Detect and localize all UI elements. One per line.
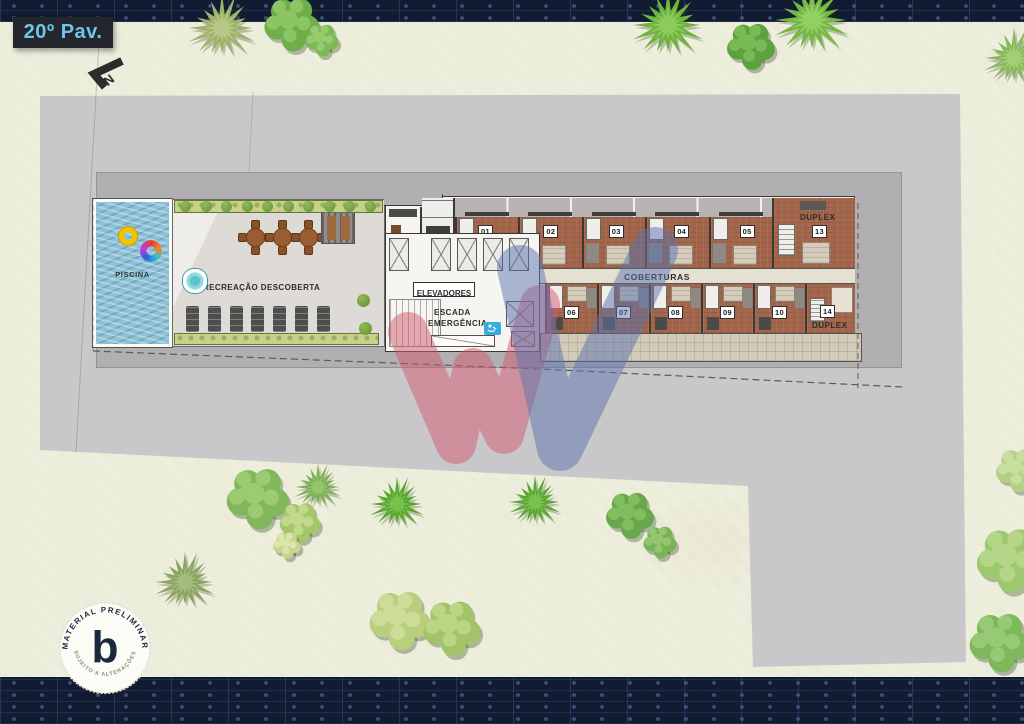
elevators-label: ELEVADORES — [417, 289, 472, 298]
elevators-labelbox: ELEVADORES — [413, 282, 475, 297]
unit-bath — [757, 285, 771, 309]
unit-number: 09 — [720, 306, 735, 319]
floor-badge: 20º Pav. — [13, 17, 113, 48]
duplex-13-word: DUPLEX — [800, 213, 835, 222]
unit-bath — [653, 285, 667, 309]
hedge-shrub-icon — [283, 201, 294, 212]
unit-closet — [795, 288, 804, 308]
unit-number: 07 — [616, 306, 631, 319]
pool: PISCINA — [93, 199, 172, 347]
unit-06: 06 — [545, 284, 597, 333]
unit-bath — [705, 285, 719, 309]
unit-bed — [671, 286, 691, 302]
duplex-14-word: DUPLEX — [812, 321, 847, 330]
unit-bed — [606, 245, 630, 265]
duplex-13: DUPLEX 13 — [772, 198, 855, 268]
unit-closet — [639, 288, 648, 308]
unit-counter — [649, 243, 662, 263]
stamp-monogram: b — [92, 623, 119, 672]
duplex-13-bed — [802, 242, 830, 264]
duplex-13-number: 13 — [812, 225, 827, 238]
hedge-bottom — [174, 333, 379, 345]
balcony-window-frame — [655, 212, 699, 216]
floorplan-page: PISCINA RECREAÇÃO DESCOBERTA RECREAÇÃO C… — [0, 0, 1024, 724]
unit-closet — [691, 288, 700, 308]
unit-09: 09 — [701, 284, 753, 333]
elevator-shaft — [506, 301, 534, 327]
hedge-shrub-icon — [180, 201, 191, 212]
chair — [278, 246, 287, 255]
unit-counter — [586, 243, 599, 263]
preliminary-stamp: MATERIAL PRELIMINAR SUJEITO A ALTERAÇÕES… — [57, 600, 153, 696]
outdoor-recreation-label: RECREAÇÃO DESCOBERTA — [203, 283, 320, 292]
duplex-14: 14 DUPLEX — [805, 284, 855, 333]
sun-lounger-icon — [251, 306, 264, 332]
unit-number: 02 — [543, 225, 558, 238]
unit-closet — [587, 288, 596, 308]
unit-storage — [603, 317, 615, 330]
hedge-shrub-icon — [221, 201, 232, 212]
unit-07: 07 — [597, 284, 649, 333]
table-icon — [299, 228, 318, 247]
hedge-shrub-icon — [242, 201, 253, 212]
unit-number: 08 — [668, 306, 683, 319]
elevator-shaft — [511, 331, 535, 347]
unit-number: 04 — [674, 225, 689, 238]
elevator-core: ELEVADORES ESCADA EMERGÊNCIA — [385, 233, 540, 352]
pergola — [321, 211, 355, 244]
unit-10: 10 — [753, 284, 805, 333]
unit-number: 10 — [772, 306, 787, 319]
unit-number: 05 — [740, 225, 755, 238]
unit-counter — [713, 243, 726, 263]
hedge-shrub-icon — [262, 201, 273, 212]
chair — [251, 246, 260, 255]
accessibility-badge-icon — [484, 322, 501, 335]
core-bench — [431, 335, 495, 347]
unit-bed — [542, 245, 566, 265]
stairs-label-1: ESCADA — [434, 308, 471, 317]
unit-storage — [759, 317, 771, 330]
unit-bath — [601, 285, 615, 309]
table-icon — [246, 228, 265, 247]
duplex-14-number: 14 — [820, 305, 835, 318]
floor-badge-label: 20º Pav. — [13, 17, 113, 48]
unit-number: 06 — [564, 306, 579, 319]
outdoor-recreation-deck: RECREAÇÃO DESCOBERTA — [172, 199, 385, 347]
table-icon — [273, 228, 292, 247]
unit-bed — [723, 286, 743, 302]
unit-bed — [775, 286, 795, 302]
unit-05: 05 — [709, 217, 772, 268]
unit-closet — [743, 288, 752, 308]
elevator-shaft — [389, 238, 409, 271]
pool-float-rainbow-icon — [140, 240, 162, 262]
unit-storage — [655, 317, 667, 330]
balcony-window-frame — [528, 212, 572, 216]
sun-lounger-icon — [208, 306, 221, 332]
unit-storage — [551, 317, 563, 330]
planter-shrub-icon — [357, 294, 370, 307]
elevator-shaft — [509, 238, 529, 271]
north-arrow-icon: N — [84, 52, 130, 96]
unit-bed — [669, 245, 693, 265]
unit-03: 03 — [582, 217, 645, 268]
sun-lounger-icon — [273, 306, 286, 332]
unit-04: 04 — [645, 217, 708, 268]
duplex-13-stair — [778, 224, 795, 256]
terrace-band — [540, 333, 862, 362]
balcony-window-frame — [719, 212, 763, 216]
corridor-label: COBERTURAS — [624, 272, 690, 282]
hedge-shrub-icon — [344, 201, 355, 212]
sun-lounger-icon — [186, 306, 199, 332]
stairs-label-2: EMERGÊNCIA — [428, 319, 487, 328]
unit-bath — [649, 218, 664, 240]
elevator-shaft — [457, 238, 477, 271]
hedge-shrub-icon — [303, 201, 314, 212]
unit-bath — [549, 285, 563, 309]
pergola-lounger — [327, 216, 336, 240]
table-small — [391, 225, 401, 233]
hedge-shrub-icon — [201, 201, 212, 212]
unit-bath — [586, 218, 601, 240]
spa-icon — [183, 269, 207, 293]
unit-storage — [707, 317, 719, 330]
planter-shrub-icon — [359, 322, 372, 335]
chair — [304, 246, 313, 255]
bench — [389, 209, 417, 217]
balcony-window-frame — [465, 212, 509, 216]
unit-number: 03 — [609, 225, 624, 238]
pool-label: PISCINA — [96, 270, 169, 279]
unit-bed — [567, 286, 587, 302]
hedge-shrub-icon — [324, 201, 335, 212]
balcony-window-frame — [592, 212, 636, 216]
unit-bed — [619, 286, 639, 302]
unit-bath — [713, 218, 728, 240]
hedge-shrub-icon — [365, 201, 376, 212]
sun-lounger-icon — [295, 306, 308, 332]
duplex-13-sofa — [800, 201, 826, 210]
elevator-shaft — [483, 238, 503, 271]
unit-08: 08 — [649, 284, 701, 333]
sun-lounger-icon — [317, 306, 330, 332]
sun-lounger-icon — [230, 306, 243, 332]
pergola-lounger — [341, 216, 350, 240]
pool-float-yellow-icon — [118, 226, 138, 246]
corridor: COBERTURAS — [540, 268, 855, 284]
unit-bed — [733, 245, 757, 265]
elevator-shaft — [431, 238, 451, 271]
